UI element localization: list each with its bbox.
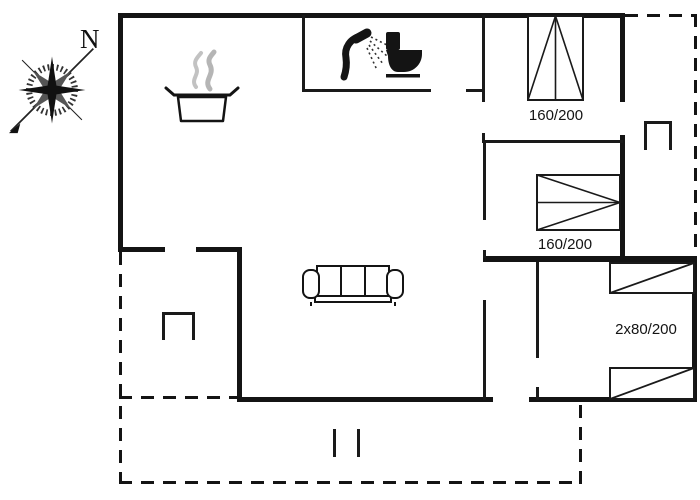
double-bed-icon — [536, 174, 621, 231]
bed-size-label: 160/200 — [538, 236, 592, 253]
double-bed-icon — [527, 15, 584, 101]
interior-wall — [482, 140, 623, 143]
interior-wall — [483, 143, 486, 220]
bed-size-label: 2x80/200 — [615, 321, 677, 338]
steam-icon — [194, 52, 214, 89]
single-bed-icon — [609, 262, 695, 294]
steps-icon — [644, 121, 672, 150]
terrace-marker-line — [357, 429, 360, 457]
sofa-icon — [302, 264, 404, 306]
exterior-wall — [237, 247, 242, 402]
interior-wall — [482, 15, 485, 102]
interior-wall — [536, 262, 539, 358]
exterior-wall — [620, 13, 625, 102]
terrace-marker-line — [333, 429, 336, 457]
terrace-outline-dashed — [119, 396, 237, 399]
exterior-wall — [118, 13, 123, 252]
cooking-pot-icon — [162, 45, 242, 125]
interior-wall — [302, 15, 305, 92]
interior-wall — [483, 300, 486, 400]
terrace-outline-dashed — [694, 14, 697, 258]
terrace-outline-dashed — [579, 405, 582, 484]
terrace-outline-dashed — [119, 481, 582, 484]
interior-wall — [536, 387, 539, 400]
toilet-icon — [384, 32, 424, 82]
exterior-wall — [237, 397, 493, 402]
interior-wall — [483, 250, 486, 258]
bed-size-label: 160/200 — [529, 107, 583, 124]
single-bed-icon — [609, 367, 695, 400]
terrace-outline-dashed — [119, 252, 122, 484]
interior-wall — [302, 89, 431, 92]
steps-icon — [162, 312, 195, 340]
floor-plan-canvas: N — [0, 0, 700, 500]
exterior-wall — [196, 247, 242, 252]
terrace-outline-dashed — [625, 14, 697, 17]
compass-rose-icon — [8, 46, 96, 134]
exterior-wall — [118, 247, 165, 252]
